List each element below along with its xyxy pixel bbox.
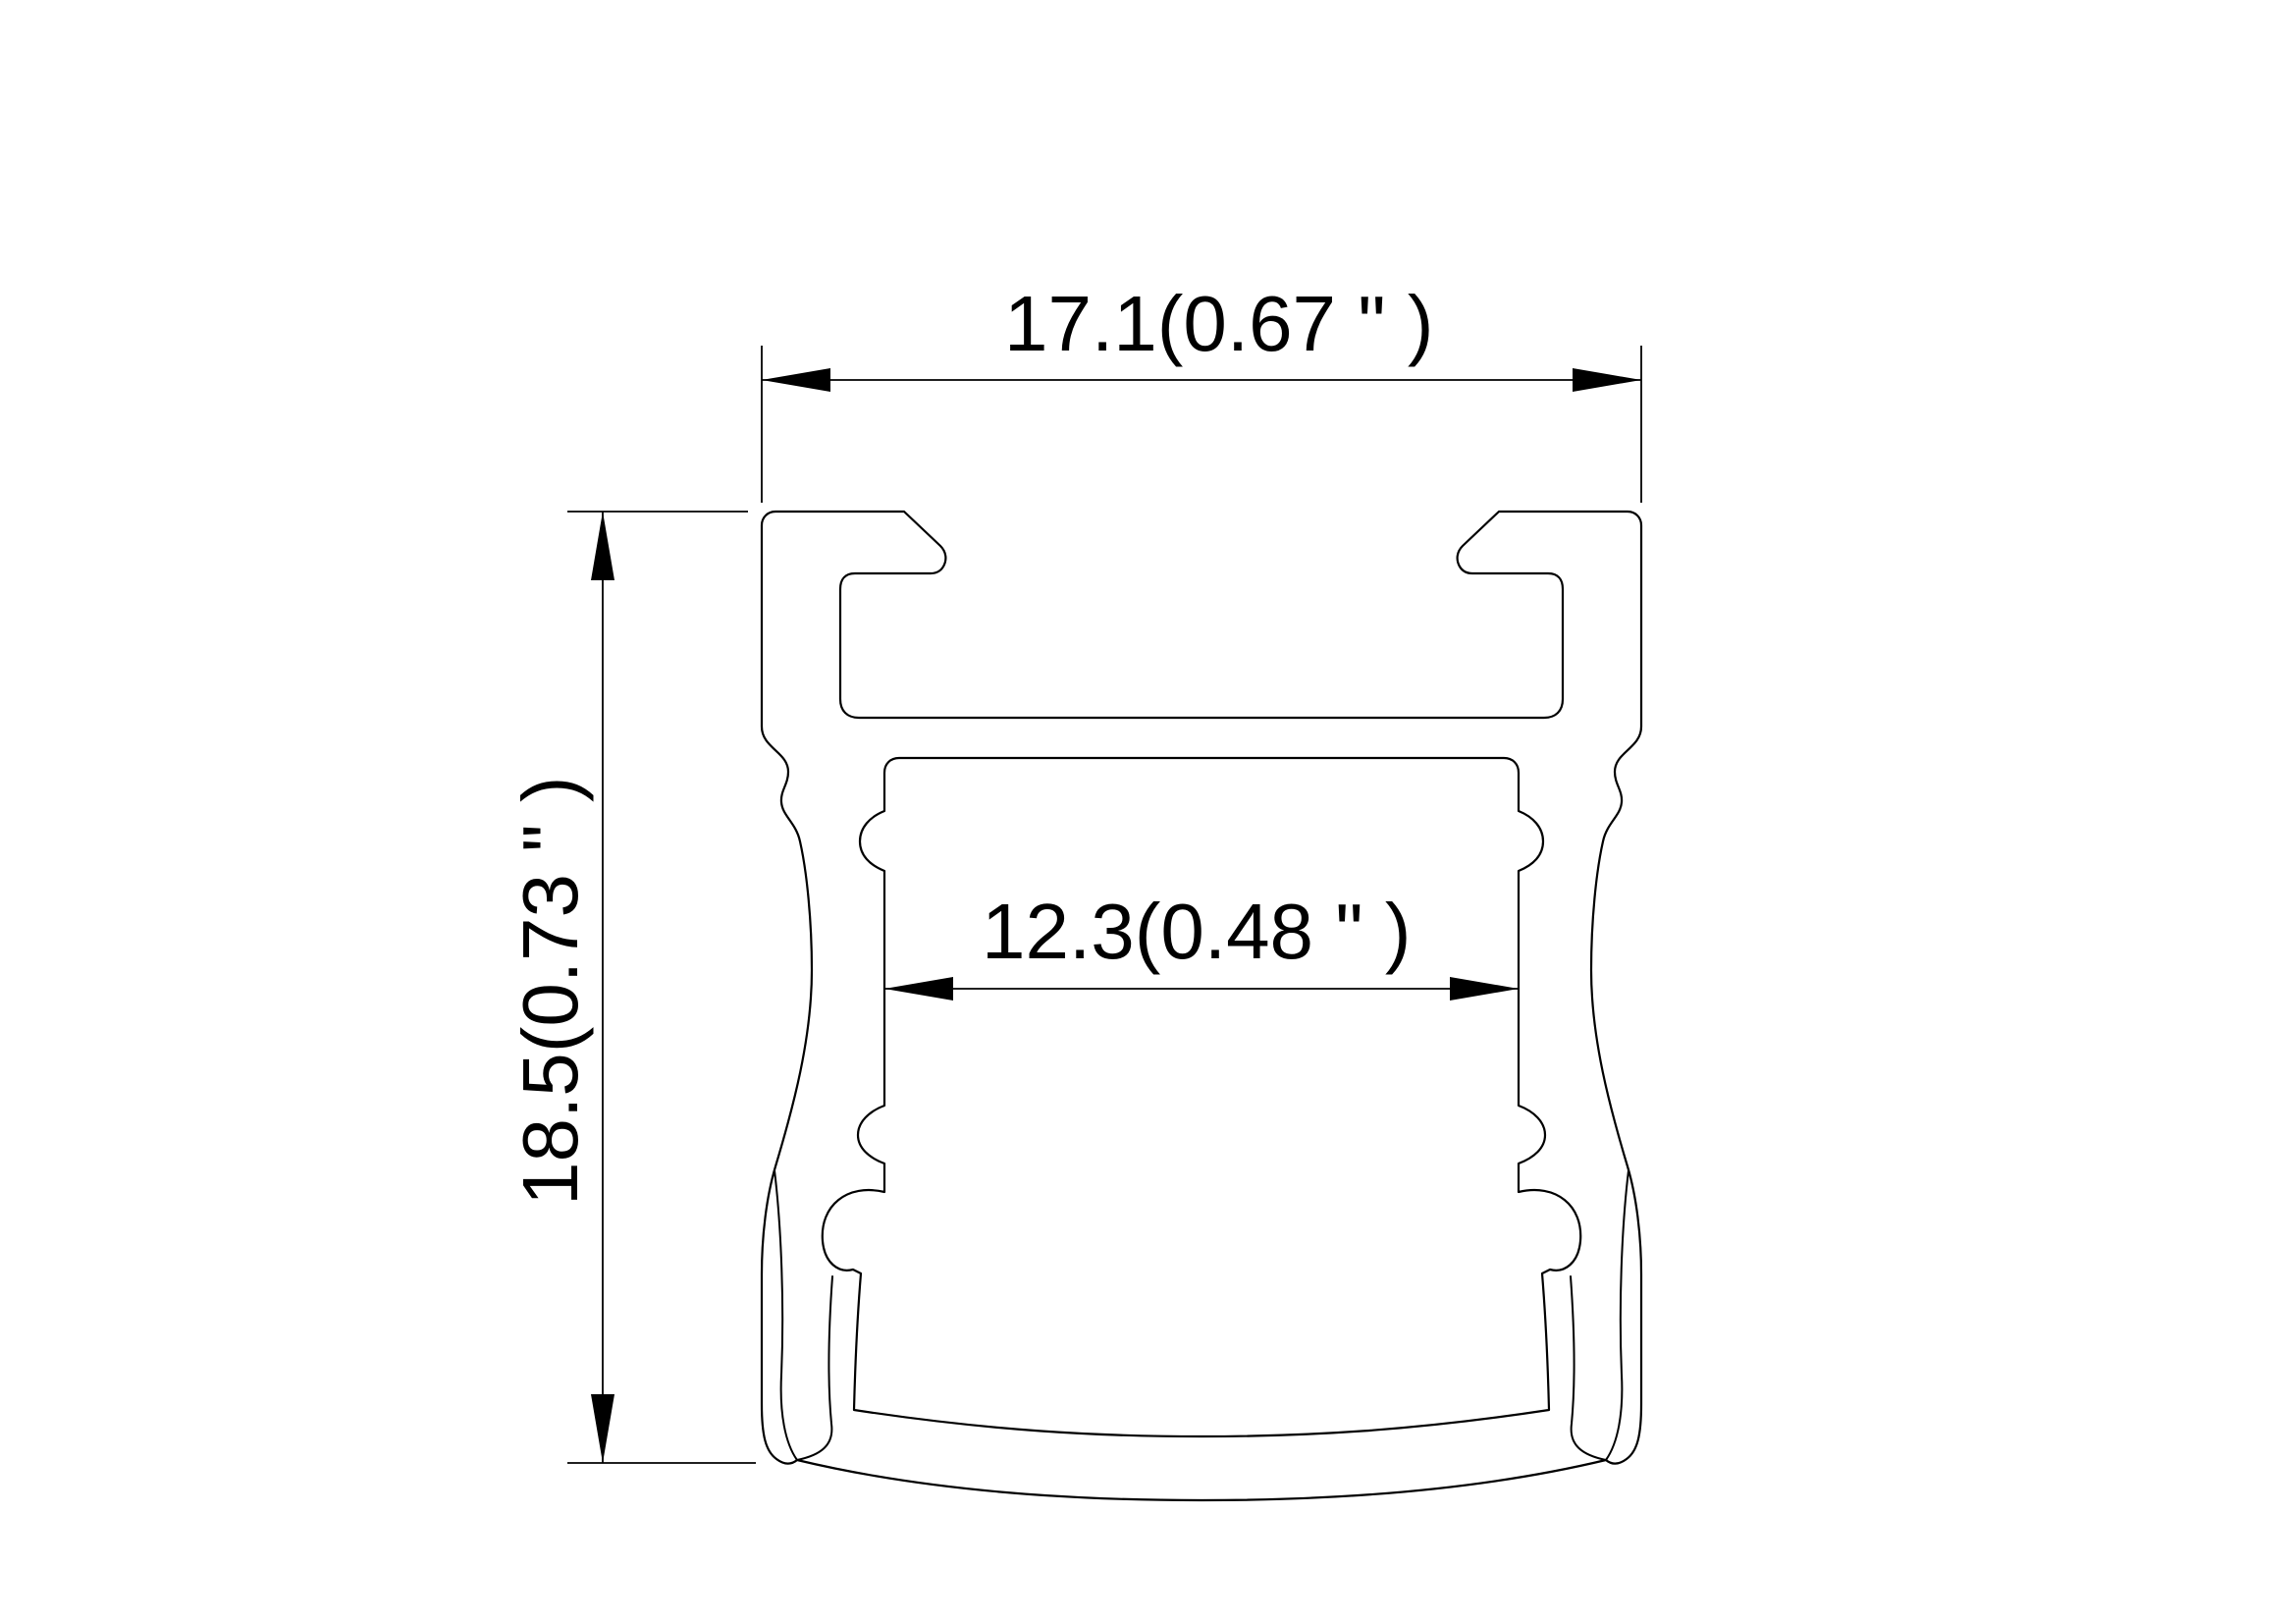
dimension-overall-height: 18.5(0.73 " ): [507, 512, 756, 1463]
arrow-right-icon: [1450, 977, 1519, 1001]
foot-inner-detail-left: [774, 1170, 797, 1460]
overall-height-label: 18.5(0.73 " ): [507, 776, 594, 1206]
inner-width-label: 12.3(0.48 " ): [982, 888, 1412, 975]
foot-inner-detail-right: [1606, 1170, 1629, 1460]
arrow-left-icon: [762, 368, 830, 392]
arrow-left-icon: [884, 977, 953, 1001]
drawing-canvas: 17.1(0.67 " ) 18.5(0.73 " ) 12.3(0.48 " …: [0, 0, 2296, 1623]
profile-cross-section: [762, 512, 1641, 1500]
profile-outer-outline: [762, 512, 1641, 1500]
screw-channel-detail-right: [1571, 1276, 1606, 1460]
screw-channel-detail-left: [797, 1276, 832, 1460]
arrow-up-icon: [591, 512, 614, 580]
arrow-down-icon: [591, 1394, 614, 1463]
outer-width-label: 17.1(0.67 " ): [1004, 280, 1434, 367]
profile-drawing: 17.1(0.67 " ) 18.5(0.73 " ) 12.3(0.48 " …: [0, 0, 2296, 1623]
dimension-outer-width: 17.1(0.67 " ): [762, 280, 1641, 503]
dimension-inner-width: 12.3(0.48 " ): [884, 888, 1519, 1001]
arrow-right-icon: [1573, 368, 1641, 392]
profile-inner-channel: [823, 758, 1580, 1436]
